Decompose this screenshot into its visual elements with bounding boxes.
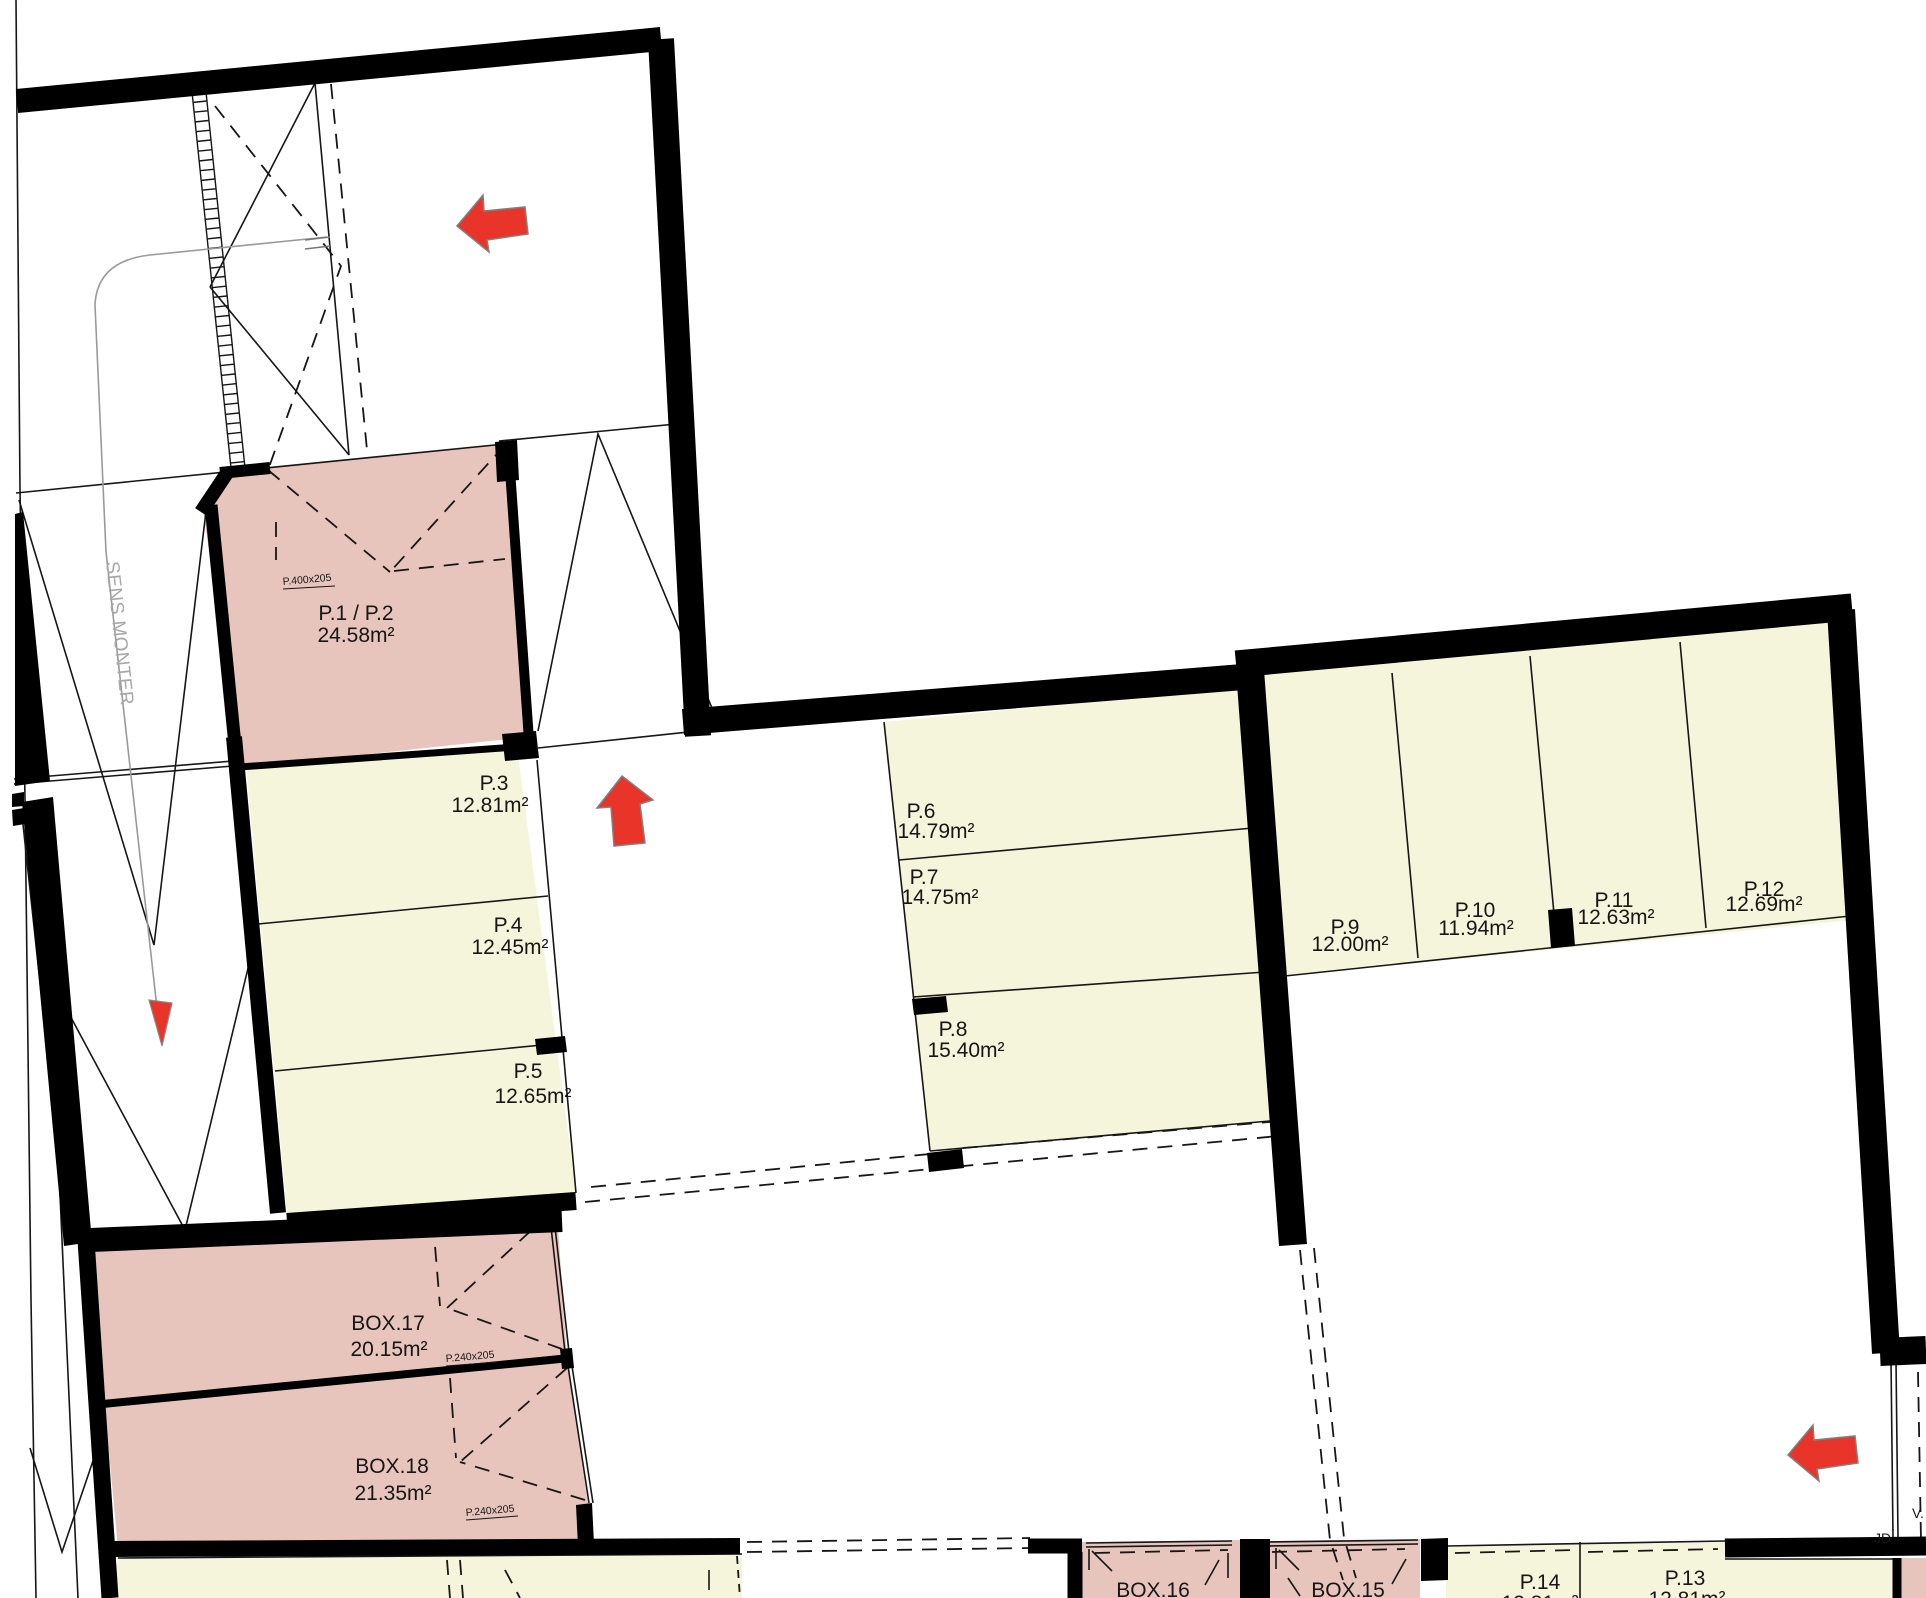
svg-text:11.94m²: 11.94m²: [1438, 917, 1513, 940]
svg-text:21.35m²: 21.35m²: [354, 1482, 431, 1505]
svg-text:V.: V.: [1912, 1505, 1924, 1521]
svg-text:P.14: P.14: [1520, 1571, 1561, 1594]
svg-text:12.81m²: 12.81m²: [1648, 1588, 1725, 1598]
svg-text:BOX.15: BOX.15: [1311, 1579, 1385, 1598]
svg-text:12.81m²: 12.81m²: [451, 794, 528, 817]
svg-text:14.75m²: 14.75m²: [901, 886, 978, 909]
svg-text:P.5: P.5: [514, 1060, 543, 1083]
svg-text:P.13: P.13: [1665, 1567, 1706, 1590]
svg-text:24.58m²: 24.58m²: [317, 624, 394, 647]
svg-text:12.63m²: 12.63m²: [1577, 906, 1654, 929]
svg-text:P.8: P.8: [939, 1018, 968, 1041]
svg-text:BOX.17: BOX.17: [351, 1312, 425, 1335]
svg-text:20.15m²: 20.15m²: [350, 1338, 427, 1361]
svg-text:P.3: P.3: [480, 772, 509, 795]
svg-text:P.4: P.4: [494, 914, 523, 937]
svg-text:P.1 / P.2: P.1 / P.2: [318, 602, 393, 625]
svg-text:14.79m²: 14.79m²: [897, 820, 974, 843]
svg-text:12.65m²: 12.65m²: [494, 1085, 571, 1108]
svg-text:12.00m²: 12.00m²: [1311, 933, 1388, 956]
svg-text:BOX.16: BOX.16: [1116, 1579, 1190, 1598]
svg-text:12.81m²: 12.81m²: [1501, 1592, 1578, 1598]
svg-text:12.45m²: 12.45m²: [471, 936, 548, 959]
svg-text:JD: JD: [1874, 1530, 1891, 1546]
svg-text:BOX.18: BOX.18: [355, 1455, 429, 1478]
svg-text:15.40m²: 15.40m²: [927, 1039, 1004, 1062]
svg-text:12.69m²: 12.69m²: [1725, 893, 1802, 916]
